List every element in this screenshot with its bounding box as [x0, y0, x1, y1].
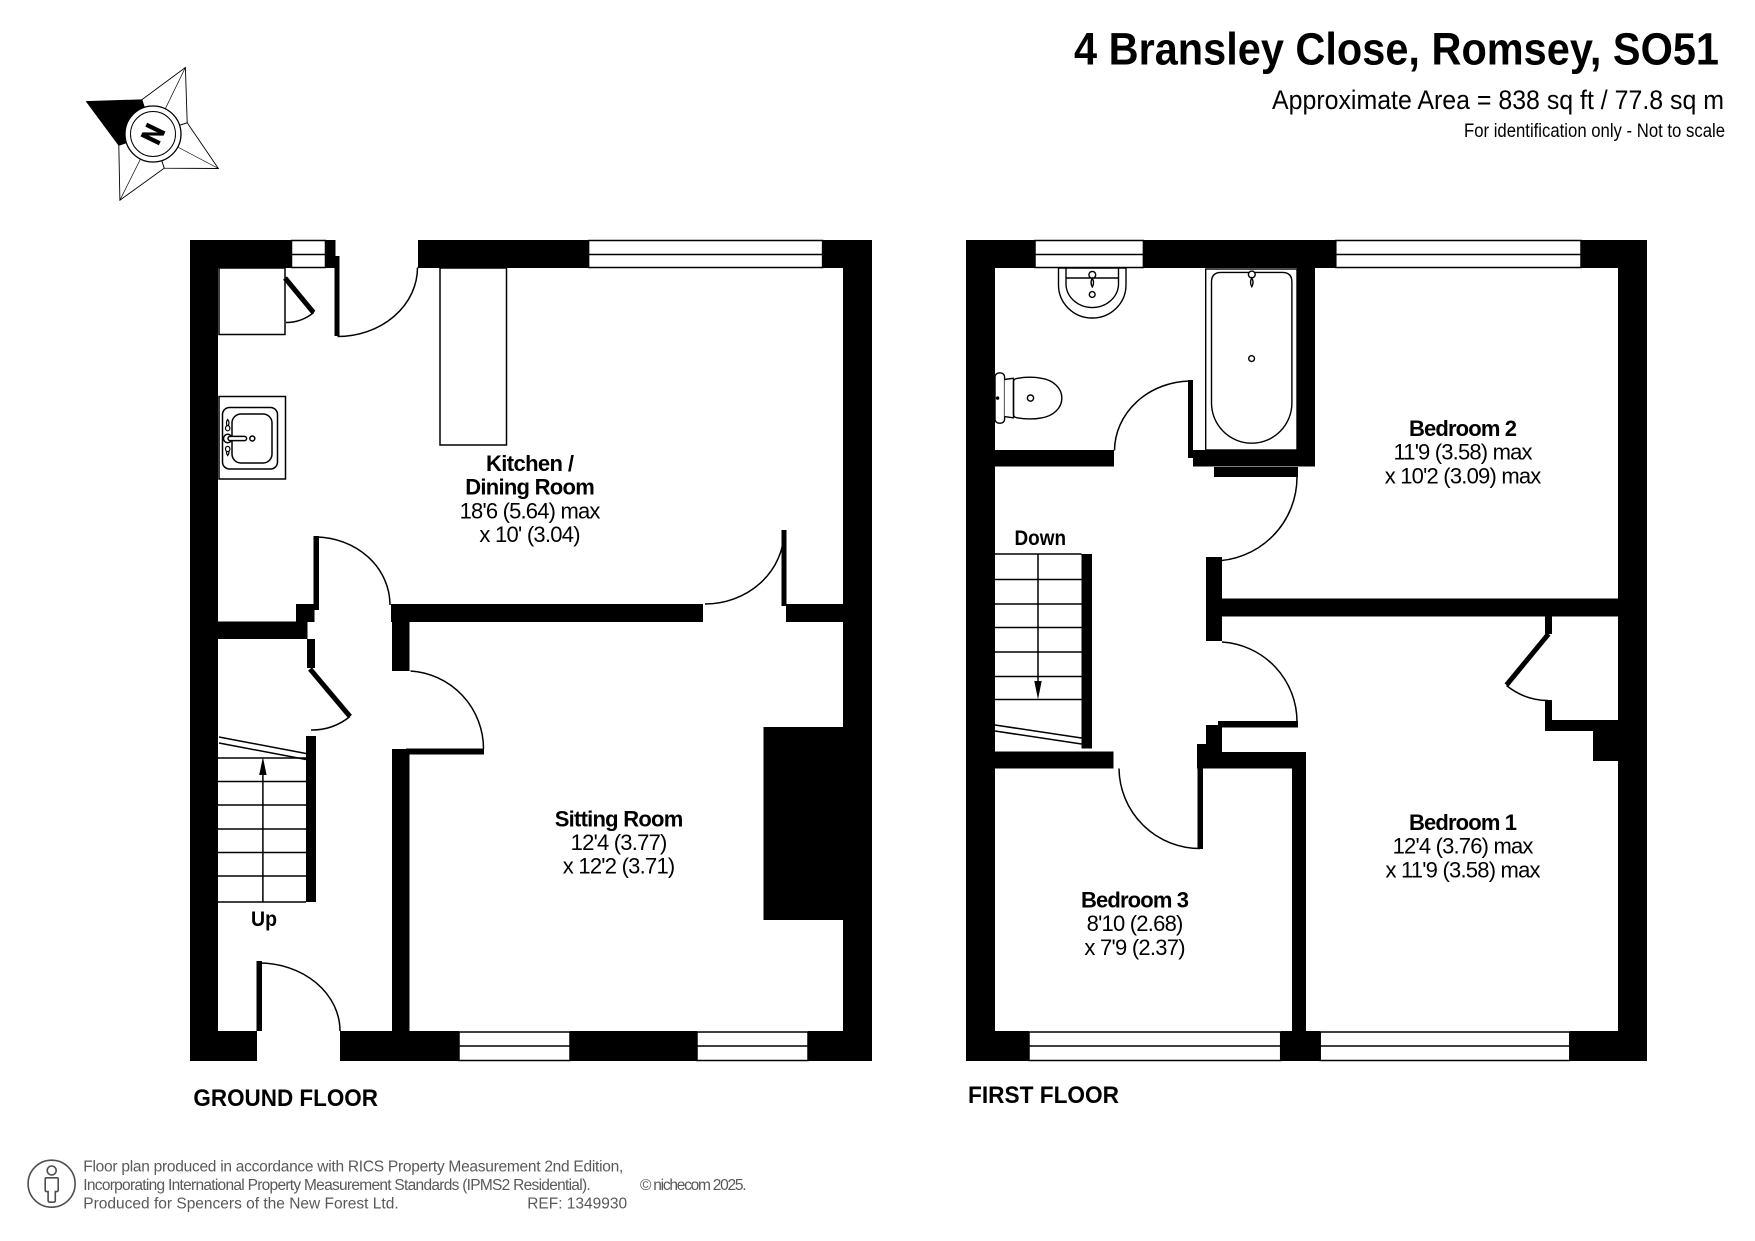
svg-text:8'10 (2.68): 8'10 (2.68) [1087, 911, 1184, 936]
svg-text:12'4 (3.77): 12'4 (3.77) [571, 830, 668, 855]
svg-text:Down: Down [1015, 527, 1067, 550]
svg-text:x 10' (3.04): x 10' (3.04) [479, 522, 580, 547]
svg-text:Up: Up [251, 908, 277, 931]
svg-text:Kitchen /: Kitchen / [486, 451, 574, 476]
svg-text:x 10'2 (3.09) max: x 10'2 (3.09) max [1385, 463, 1542, 488]
svg-text:For identification only - Not: For identification only - Not to scale [1464, 121, 1725, 142]
svg-text:11'9 (3.58) max: 11'9 (3.58) max [1394, 440, 1533, 465]
svg-text:Produced for Spencers of the N: Produced for Spencers of the New Forest … [83, 1195, 398, 1212]
svg-text:x 11'9 (3.58) max: x 11'9 (3.58) max [1385, 857, 1540, 882]
svg-text:Sitting Room: Sitting Room [555, 806, 684, 831]
svg-text:FIRST FLOOR: FIRST FLOOR [968, 1082, 1119, 1109]
svg-text:© nichecom 2025.: © nichecom 2025. [640, 1177, 747, 1194]
svg-text:x 7'9 (2.37): x 7'9 (2.37) [1084, 935, 1185, 960]
svg-text:Approximate Area = 838 sq ft /: Approximate Area = 838 sq ft / 77.8 sq m [1272, 85, 1724, 115]
svg-text:Bedroom 2: Bedroom 2 [1409, 416, 1517, 441]
svg-text:Dining Room: Dining Room [465, 475, 595, 500]
svg-text:Floor plan produced in accorda: Floor plan produced in accordance with R… [83, 1158, 623, 1175]
svg-text:Bedroom 3: Bedroom 3 [1081, 888, 1189, 913]
svg-text:REF: 1349930: REF: 1349930 [527, 1195, 627, 1212]
svg-text:x 12'2 (3.71): x 12'2 (3.71) [563, 854, 676, 879]
svg-text:18'6 (5.64) max: 18'6 (5.64) max [460, 498, 601, 523]
svg-text:4 Bransley Close, Romsey, SO51: 4 Bransley Close, Romsey, SO51 [1074, 24, 1719, 75]
svg-text:GROUND FLOOR: GROUND FLOOR [193, 1085, 378, 1112]
svg-text:Incorporating International Pr: Incorporating International Property Mea… [83, 1177, 590, 1194]
svg-text:12'4 (3.76) max: 12'4 (3.76) max [1393, 834, 1534, 859]
svg-text:Bedroom 1: Bedroom 1 [1409, 810, 1517, 835]
